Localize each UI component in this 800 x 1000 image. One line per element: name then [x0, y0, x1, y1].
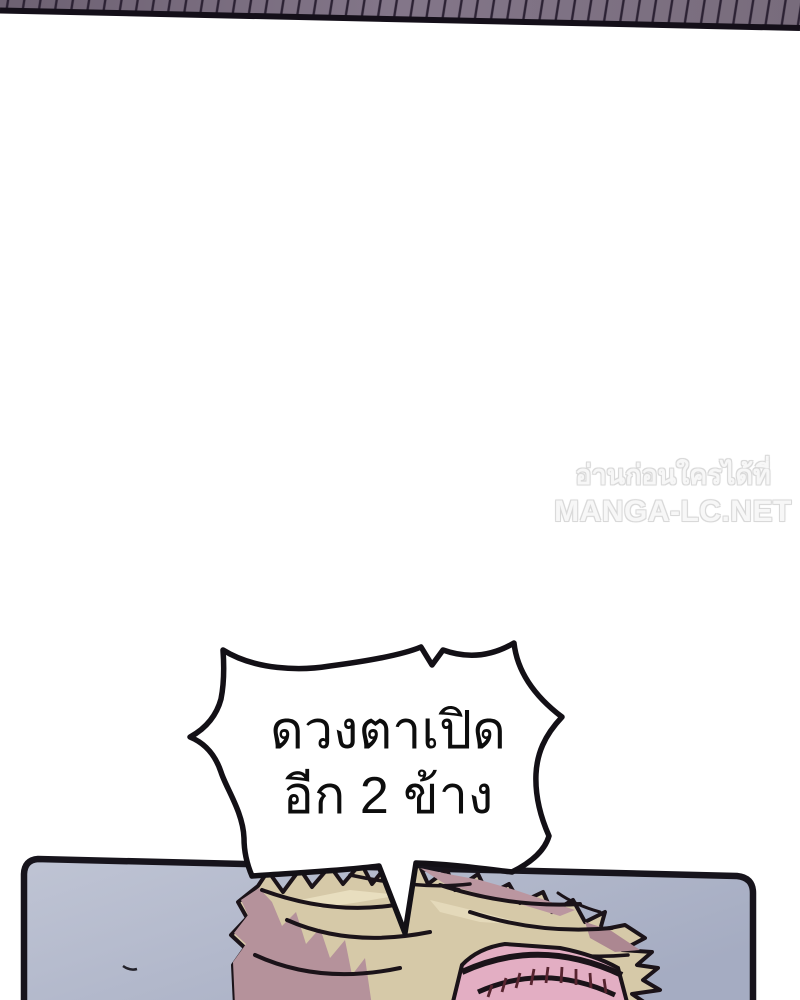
manga-page: อ่านก่อนใครได้ที่ MANGA-LC.NET	[0, 0, 800, 1000]
speech-bubble-art	[0, 0, 800, 1000]
dialogue-line-2: อีก 2 ข้าง	[236, 764, 540, 829]
speech-bubble-text: ดวงตาเปิด อีก 2 ข้าง	[236, 699, 540, 829]
dialogue-line-1: ดวงตาเปิด	[236, 699, 540, 764]
